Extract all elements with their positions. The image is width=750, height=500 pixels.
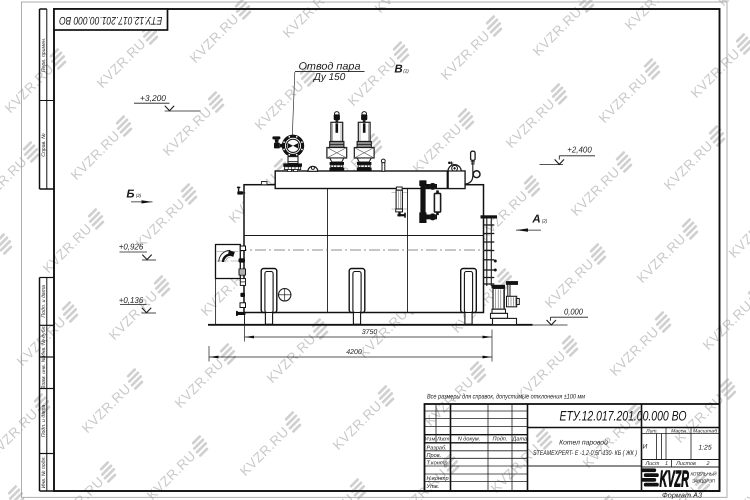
svg-text:2: 2: [706, 461, 710, 467]
svg-text:Б: Б: [126, 189, 134, 201]
svg-text:В: В: [394, 64, 402, 76]
svg-text:N докум.: N докум.: [458, 436, 481, 443]
svg-text:Инв. № дубл.: Инв. № дубл.: [41, 325, 47, 357]
svg-text:Перв. примен.: Перв. примен.: [41, 38, 47, 72]
svg-text:Формат А3: Формат А3: [662, 491, 702, 500]
svg-text:Подп. и дата: Подп. и дата: [41, 405, 47, 438]
svg-text:ЕТУ.12.017.201.00.000 ВО: ЕТУ.12.017.201.00.000 ВО: [560, 409, 687, 424]
svg-text:Лит.: Лит.: [645, 428, 658, 434]
svg-text:Масса: Масса: [671, 428, 686, 434]
svg-text:+0,136: +0,136: [119, 295, 144, 305]
svg-text:+3,200: +3,200: [140, 93, 166, 103]
svg-text:Лист: Лист: [436, 437, 450, 443]
svg-text:А: А: [531, 214, 540, 226]
svg-text:(2): (2): [403, 68, 409, 73]
svg-text:(2): (2): [136, 193, 142, 198]
svg-text:STEAMEXPERT- Е -1,2-0,5Г-130-: STEAMEXPERT- Е -1,2-0,5Г-130- КБ ( ЖК ): [533, 449, 637, 457]
svg-text:Н.контр: Н.контр: [427, 476, 449, 482]
svg-text:1:25: 1:25: [698, 445, 711, 452]
svg-text:+0,926: +0,926: [119, 242, 144, 252]
svg-text:KVZR: KVZR: [660, 466, 690, 492]
svg-text:Разраб.: Разраб.: [427, 444, 447, 451]
svg-text:Лист: Лист: [645, 461, 660, 467]
svg-text:0,000: 0,000: [564, 306, 583, 316]
svg-text:+2,400: +2,400: [567, 144, 592, 154]
svg-text:Дата: Дата: [511, 437, 527, 443]
svg-text:Инв. № подл.: Инв. № подл.: [41, 456, 47, 488]
svg-text:Ду 150: Ду 150: [313, 72, 346, 83]
svg-text:Справ. №: Справ. №: [41, 133, 47, 157]
svg-text:Масштаб: Масштаб: [693, 428, 717, 434]
svg-text:Подп. и дата: Подп. и дата: [41, 285, 47, 318]
svg-text:Пров.: Пров.: [427, 453, 442, 459]
svg-text:Отвод пара: Отвод пара: [299, 61, 361, 73]
svg-text:Взам. инв. №: Взам. инв. №: [41, 356, 47, 388]
svg-text:3750: 3750: [362, 329, 378, 336]
svg-text:(2): (2): [542, 218, 548, 223]
svg-text:КОТЕЛЬНЫЙ: КОТЕЛЬНЫЙ: [691, 471, 718, 477]
svg-text:Т.контр: Т.контр: [427, 461, 448, 467]
svg-text:Все размеры для справок, допус: Все размеры для справок, допустимые откл…: [427, 393, 585, 400]
svg-text:Утв.: Утв.: [426, 484, 440, 490]
svg-text:Подп.: Подп.: [493, 436, 508, 443]
svg-text:Изм: Изм: [425, 437, 436, 443]
svg-text:ЗАВОД РЭП: ЗАВОД РЭП: [692, 479, 716, 484]
svg-text:ЕТУ.12.017.201.00.000 ВО: ЕТУ.12.017.201.00.000 ВО: [59, 14, 162, 26]
svg-text:И: И: [643, 444, 648, 451]
svg-text:4200: 4200: [346, 349, 362, 356]
svg-text:Котел паровой: Котел паровой: [559, 439, 608, 447]
